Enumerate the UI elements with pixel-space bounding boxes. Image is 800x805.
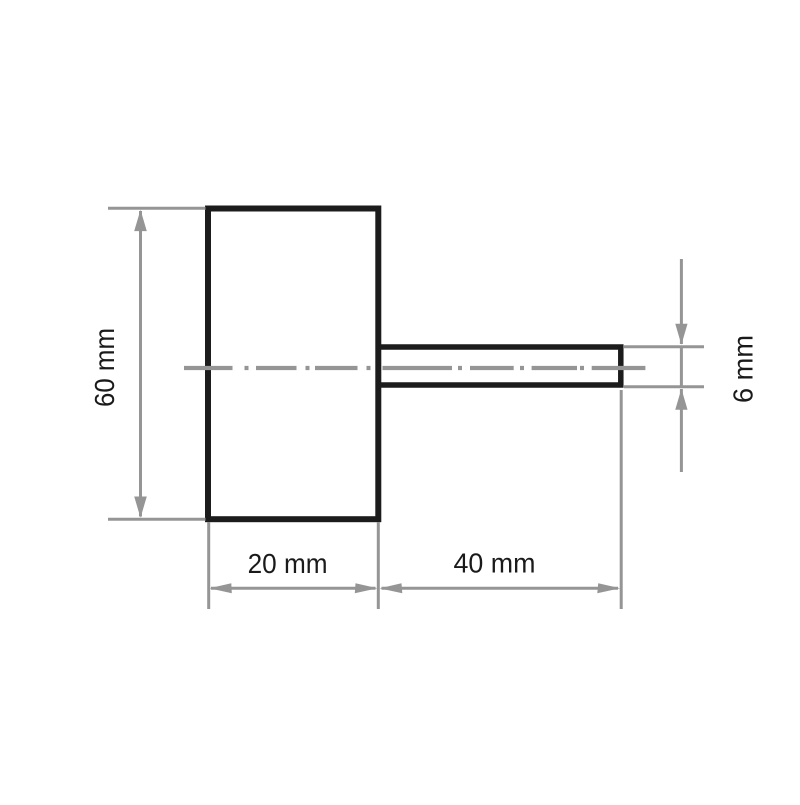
svg-text:40 mm: 40 mm xyxy=(454,548,536,579)
svg-text:6 mm: 6 mm xyxy=(727,335,758,403)
svg-text:20 mm: 20 mm xyxy=(248,548,328,579)
svg-text:60 mm: 60 mm xyxy=(89,328,120,407)
